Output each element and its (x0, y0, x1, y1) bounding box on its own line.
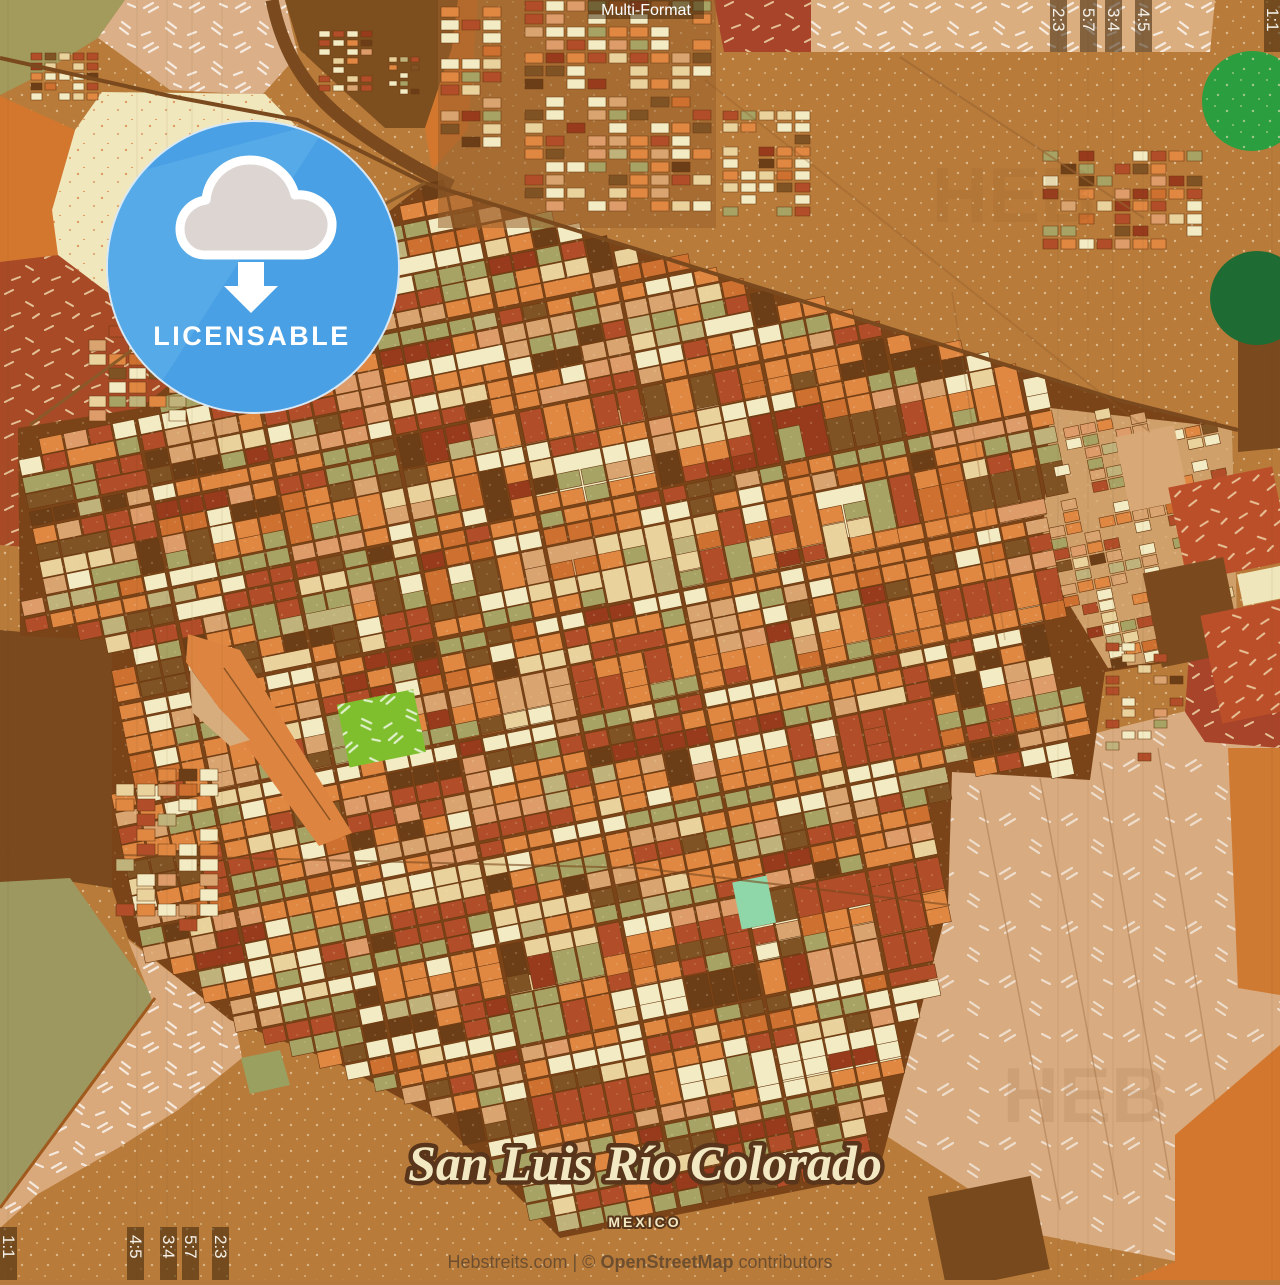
svg-text:LICENSABLE: LICENSABLE (153, 321, 351, 351)
svg-text:1:1: 1:1 (0, 1235, 18, 1259)
svg-text:San Luis Río Colorado: San Luis Río Colorado (408, 1135, 882, 1191)
svg-text:2:3: 2:3 (211, 1235, 230, 1259)
svg-text:Hebstreits.com | © OpenStreetM: Hebstreits.com | © OpenStreetMap contrib… (447, 1252, 832, 1272)
svg-text:4:5: 4:5 (126, 1235, 145, 1259)
svg-text:4:5: 4:5 (1134, 8, 1153, 32)
svg-text:2:3: 2:3 (1049, 8, 1068, 32)
svg-text:5:7: 5:7 (181, 1235, 200, 1259)
svg-text:Multi-Format: Multi-Format (601, 2, 691, 19)
svg-text:3:4: 3:4 (159, 1235, 178, 1259)
svg-text:5:7: 5:7 (1079, 8, 1098, 32)
svg-text:1:1: 1:1 (1263, 8, 1280, 32)
svg-text:MEXICO: MEXICO (608, 1214, 681, 1230)
svg-text:3:4: 3:4 (1104, 8, 1123, 32)
svg-text:HEB: HEB (932, 151, 1097, 239)
